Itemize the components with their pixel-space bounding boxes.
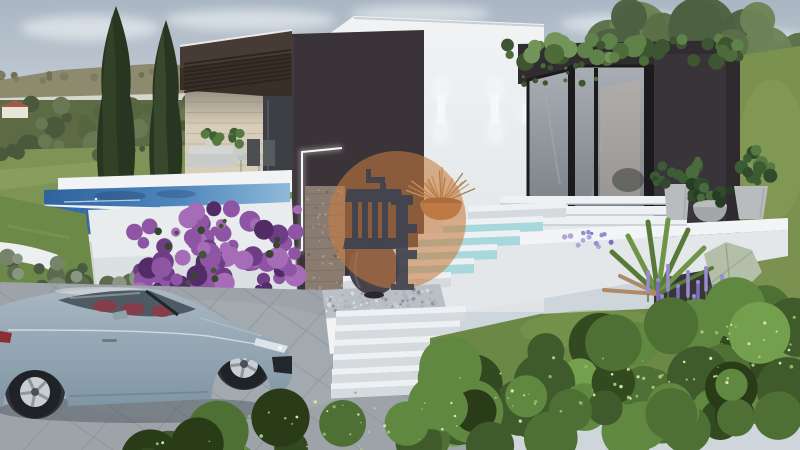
foliage-blob [523,66,526,69]
foliage-blob [334,255,337,258]
foliage-blob [563,78,567,82]
logo-column [362,202,368,238]
foliage-blob [366,302,369,305]
foliage-blob [637,375,640,378]
foliage-blob [661,374,664,377]
corner-mullion [568,66,575,206]
foliage-blob [693,378,695,380]
foliage-blob [312,226,314,228]
foliage-blob [399,303,402,306]
foliage-blob [751,145,762,156]
foliage-blob [686,165,700,179]
foliage-blob [730,324,732,326]
foliage-blob [406,303,410,307]
foliage-blob [353,301,356,304]
foliage-blob [377,303,380,306]
foliage-blob [454,415,457,418]
logo-pump-head [391,195,413,205]
foliage-blob [385,304,388,307]
foliage-blob [288,247,301,260]
foliage-blob [779,362,782,365]
foliage-blob [336,303,339,306]
foliage-blob [293,205,302,214]
foliage-blob [288,224,304,240]
foliage-blob [344,300,347,303]
foliage-blob [732,348,733,349]
foliage-blob [341,294,344,297]
foliage-blob [655,39,670,54]
foliage-blob [418,439,419,440]
water-reflection [156,190,196,198]
foliage-blob [564,67,567,70]
foliage-blob [712,191,721,200]
foliage-blob [751,364,754,367]
foliage-blob [697,193,705,201]
foliage-blob [306,446,308,448]
foliage-blob [391,306,393,308]
foliage-blob [584,365,588,369]
foliage-blob [324,213,327,216]
foliage-blob [126,224,143,241]
foliage-blob [333,405,336,408]
chair-dark [247,139,260,166]
foliage-blob [219,224,224,229]
foliage-blob [560,410,563,413]
foliage-blob [350,291,354,295]
lavender-tip [660,294,664,298]
water-sparkle [95,198,98,201]
foliage-blob [522,75,525,78]
lavender-tip [692,294,696,298]
foliage-blob [533,78,539,84]
foliage-blob [327,259,328,260]
foliage-blob [296,416,299,419]
foliage-blob [566,71,569,74]
foliage-blob [248,416,250,418]
foliage-blob [148,68,154,74]
foliage-blob [273,242,280,249]
cloud [20,15,160,41]
foliage-blob [715,375,718,378]
foliage-blob [268,411,270,413]
foliage-blob [139,72,145,78]
logo-spout-arm [366,177,385,183]
foliage-blob [527,333,564,370]
hub-cap [31,388,39,396]
foliage-blob [223,200,240,217]
foliage-blob [585,314,642,371]
foliage-blob [185,280,190,285]
foliage-blob [421,299,423,301]
foliage-blob [441,428,444,431]
foliage-blob [46,71,52,77]
foliage-blob [409,295,413,299]
foliage-blob [543,80,548,85]
foliage-blob [322,262,324,264]
foliage-blob [754,172,761,179]
foliage-blob [776,331,778,333]
foliage-blob [319,240,321,242]
foliage-blob [687,195,693,201]
foliage-blob [179,208,199,228]
foliage-blob [495,397,497,399]
foliage-blob [523,47,540,64]
foliage-blob [359,446,360,447]
logo-column [372,202,378,238]
foliage-blob [211,275,218,282]
foliage-blob [342,405,343,406]
foliage-blob [613,383,616,386]
foliage-blob [669,36,677,44]
foliage-blob [673,169,684,180]
chair-dark [263,140,275,166]
foliage-blob [528,394,530,396]
foliage-blob [138,237,150,249]
foliage-blob [306,198,309,201]
foliage-blob [686,378,688,380]
foliage-blob [12,268,24,280]
foliage-blob [534,400,537,403]
foliage-blob [361,300,364,303]
foliage-blob [308,253,311,256]
foliage-blob [568,233,574,239]
foliage-blob [586,230,591,235]
foliage-blob [360,422,362,424]
foliage-blob [291,423,293,425]
foliage-blob [742,167,753,178]
foliage-blob [562,234,567,239]
foliage-blob [212,136,222,146]
foliage-blob [726,377,729,380]
foliage-blob [611,0,647,35]
foliage-blob [359,296,362,299]
foliage-blob [788,349,791,352]
foliage-blob [383,424,386,427]
logo-pump-notch [408,224,417,233]
foliage-blob [599,233,604,238]
foliage-blob [319,400,366,447]
interior-seat [151,305,173,317]
foliage-blob [731,39,743,51]
foliage-blob [403,303,405,305]
foliage-blob [327,298,330,301]
mid-mullion [594,68,598,204]
door-stile [644,66,654,206]
foliage-blob [317,287,318,288]
foliage-blob [715,331,719,335]
villa-exterior-render [0,0,800,450]
foliage-blob [715,369,747,401]
logo-column [352,202,358,238]
foliage-blob [721,343,722,344]
foliage-blob [609,240,614,245]
foliage-blob [743,154,752,163]
wall-sconce [437,94,445,124]
foliage-blob [709,357,712,360]
foliage-blob [609,52,620,63]
foliage-blob [642,360,643,361]
foliage-blob [507,397,509,399]
logo-column [382,202,388,238]
foliage-blob [317,223,319,225]
lavender-tip [656,278,660,282]
foliage-blob [713,375,715,377]
foliage-blob [512,405,513,406]
foliage-blob [175,250,191,266]
foliage-blob [321,231,323,233]
tail-lamp [0,331,12,343]
foliage-blob [629,397,631,399]
foliage-blob [334,263,335,264]
foliage-blob [191,272,198,279]
foliage-blob [326,410,328,412]
foliage-blob [201,130,210,139]
foliage-blob [501,39,514,52]
foliage-blob [592,389,594,391]
foliage-blob [582,231,586,235]
foliage-blob [323,225,325,227]
foliage-blob [274,237,280,243]
foliage-blob [596,41,605,50]
foliage-blob [60,72,69,81]
amphora-base [364,292,384,299]
foliage-blob [579,80,586,87]
foliage-blob [573,63,579,69]
foliage-blob [594,241,599,246]
covered-terrace [185,92,292,176]
foliage-blob [699,183,709,193]
foliage-blob [727,338,729,340]
foliage-blob [700,330,703,333]
foliage-blob [329,263,331,265]
foliage-blob [422,408,423,409]
foliage-blob [35,118,48,131]
foliage-blob [549,389,592,432]
foliage-blob [368,431,369,432]
foliage-blob [317,216,319,218]
foliage-blob [325,310,328,313]
foliage-blob [552,356,555,359]
foliage-blob [316,207,318,209]
foliage-blob [544,44,564,64]
lavender-tip [720,274,724,278]
foliage-blob [593,394,596,397]
watermark [328,151,466,290]
headlight-dot [278,346,282,350]
foliage-blob [717,45,730,58]
foliage-blob [402,294,406,298]
foliage-blob [645,388,697,440]
foliage-blob [259,434,263,438]
foliage-blob [758,355,761,358]
foliage-blob [251,389,309,447]
foliage-blob [209,441,210,442]
foliage-blob [717,399,755,437]
foliage-blob [421,290,423,292]
foliage-blob [318,213,321,216]
foliage-blob [763,321,766,324]
foliage-blob [500,373,502,375]
foliage-blob [521,81,527,87]
foliage-blob [220,242,232,254]
foliage-blob [726,326,728,328]
foliage-blob [314,400,317,403]
foliage-blob [199,251,207,259]
foliage-blob [197,226,205,234]
foliage-blob [39,77,46,84]
foliage-blob [717,367,718,368]
foliage-blob [356,306,359,309]
foliage-blob [165,243,172,250]
foliage-blob [642,377,645,380]
foliage-blob [354,306,357,309]
interior-seat [93,300,117,312]
foliage-blob [424,402,426,404]
foliage-blob [14,76,19,81]
foliage-blob [384,298,387,301]
foliage-blob [344,305,348,309]
foliage-blob [644,297,698,351]
logo-pump-foot [391,284,414,290]
foliage-blob [328,239,329,240]
foliage-blob [549,375,552,378]
foliage-blob [426,289,430,293]
foliage-blob [577,42,593,58]
foliage-blob [408,376,461,429]
foliage-blob [587,235,592,240]
foliage-blob [702,38,715,51]
render-stage [0,0,800,450]
foliage-blob [12,253,23,264]
foliage-blob [594,77,598,81]
foliage-blob [450,402,452,404]
foliage-blob [235,129,244,138]
lavender-tip [704,266,708,270]
foliage-blob [229,135,237,143]
foliage-blob [377,436,379,438]
foliage-blob [349,433,351,435]
foliage-blob [581,238,586,243]
foliage-blob [71,271,83,283]
foliage-blob [789,343,791,345]
foliage-blob [330,263,333,266]
foliage-blob [523,394,525,396]
foliage-blob [318,189,320,191]
lavender-tip [666,264,670,268]
lavender-tip [686,270,690,274]
foliage-blob [658,161,668,171]
foliage-blob [416,290,420,294]
foliage-blob [387,431,390,434]
foliage-blob [632,35,647,50]
front-grille [272,356,292,374]
foliage-blob [52,97,70,115]
foliage-blob [668,381,670,383]
foliage-blob [725,187,733,195]
foliage-blob [313,277,316,280]
foliage-blob [50,256,65,271]
foliage-blob [156,442,159,445]
foliage-blob [322,203,324,205]
foliage-blob [223,219,227,223]
foliage-blob [171,274,183,286]
foliage-blob [375,299,378,302]
foliage-blob [327,303,331,307]
foliage-blob [747,342,750,345]
cottage-wall [2,106,28,118]
foliage-blob [590,232,593,235]
foliage-blob [790,365,794,369]
foliage-blob [729,302,791,364]
foliage-blob [151,257,172,278]
foliage-blob [360,304,363,307]
foliage-blob [34,263,45,274]
foliage-blob [660,178,670,188]
foliage-blob [175,231,179,235]
foliage-blob [326,191,328,193]
foliage-blob [322,255,325,258]
foliage-blob [401,299,404,302]
entrance-step [500,196,668,204]
foliage-blob [139,146,145,152]
entry-glass-left [528,69,572,203]
foliage-blob [652,386,655,389]
foliage-blob [323,433,326,436]
foliage-blob [793,316,796,319]
foliage-blob [683,361,686,364]
foliage-blob [361,292,364,295]
door-handle [102,339,117,342]
foliage-blob [90,73,98,81]
sofa-seat [187,154,237,167]
lavender-tip [646,270,650,274]
foliage-blob [211,268,217,274]
foliage-blob [619,385,622,388]
foliage-blob [505,375,547,417]
foliage-blob [319,277,320,278]
lavender-tip [696,280,700,284]
foliage-blob [421,301,424,304]
foliage-blob [740,2,775,37]
logo-base [343,238,405,249]
foliage-blob [627,368,630,371]
foliage-blob [154,228,162,236]
foliage-blob [396,305,399,308]
foliage-blob [639,56,649,66]
foliage-blob [653,180,659,186]
foliage-blob [428,298,432,302]
foliage-blob [395,292,399,296]
wall-sconce [491,94,499,124]
foliage-blob [318,287,321,290]
foliage-blob [576,243,581,248]
foliage-blob [383,298,385,300]
foliage-blob [38,134,52,148]
foliage-blob [588,390,623,425]
foliage-blob [763,339,765,341]
foliage-blob [161,441,164,444]
interior-plant-silhouette [612,168,644,192]
foliage-blob [266,250,274,258]
foliage-blob [456,425,457,426]
foliage-blob [541,63,546,68]
foliage-blob [333,309,336,312]
foliage-blob [687,54,700,67]
logo-pump-post [396,205,408,288]
foliage-blob [339,298,343,302]
cloud [165,9,335,31]
foliage-blob [677,34,688,45]
